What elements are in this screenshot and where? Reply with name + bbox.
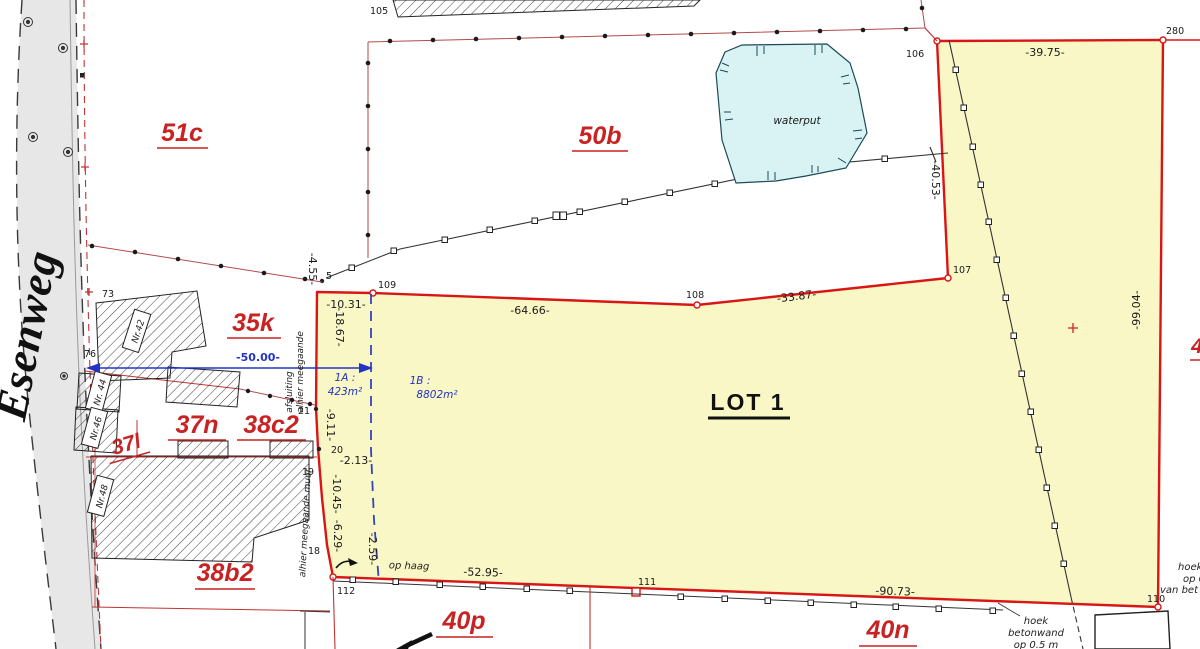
fence-post-icon	[350, 577, 356, 583]
survey-point-icon	[694, 302, 700, 308]
edge-note-line1: hoek	[1178, 562, 1200, 573]
point-109: 109	[378, 280, 396, 291]
manhole-icon	[31, 135, 34, 138]
fence-post-icon	[893, 604, 899, 610]
fence-post-icon	[851, 602, 857, 608]
point-73: 73	[102, 289, 114, 300]
fence-post-icon	[391, 248, 397, 254]
lot1-title: LOT 1	[710, 389, 785, 415]
manhole-icon	[63, 375, 65, 377]
corner-note-line3: op 0.5 m	[1014, 640, 1059, 649]
building-hatched-nr48	[91, 456, 309, 562]
survey-point-icon	[1160, 37, 1166, 43]
fence-post-icon	[936, 606, 942, 612]
measure-9-11: -9.11-	[324, 409, 337, 441]
parcel-label-38b2: 38b2	[197, 559, 254, 587]
fence-post-icon	[1003, 295, 1009, 301]
measure-90-73: -90.73-	[875, 584, 915, 598]
fence-post-icon	[437, 582, 443, 588]
fence-annotation-line2: afsluiting	[285, 371, 295, 413]
survey-point-icon	[314, 407, 318, 411]
fence-post-icon	[882, 156, 888, 162]
arrowhead-icon	[396, 640, 412, 649]
fence-post-icon	[808, 600, 814, 606]
fence-post-icon	[1028, 409, 1034, 415]
point-280: 280	[1166, 26, 1184, 37]
fence-post-icon	[1011, 333, 1017, 339]
fence-post-icon	[393, 579, 399, 585]
fence-post-icon	[349, 265, 355, 271]
measure-2-59: -2.59-	[366, 533, 379, 565]
fence-post-icon	[1061, 561, 1067, 567]
point-76: 76	[84, 349, 96, 360]
fence-post-icon	[978, 182, 984, 188]
fence-post-icon	[765, 598, 771, 604]
hedge-annotation: op haag	[389, 560, 430, 572]
building-hatched	[178, 441, 228, 458]
measure-4-55: -4.55-	[306, 253, 319, 285]
parcel-label-40n: 40n	[865, 616, 909, 644]
manhole-icon	[61, 46, 64, 49]
point-105: 105	[370, 6, 388, 17]
survey-point-icon	[632, 588, 640, 596]
fence-post-icon	[986, 219, 992, 225]
measure-2-13: -2.13-	[340, 454, 372, 467]
survey-point-icon	[317, 447, 321, 451]
point-106: 106	[906, 49, 924, 60]
fence-post-icon	[524, 586, 530, 592]
survey-point-icon	[320, 279, 324, 283]
fence-post-icon	[1019, 371, 1025, 377]
fence-post-icon	[1036, 447, 1042, 453]
point-108: 108	[686, 290, 704, 301]
fence-post-icon	[970, 144, 976, 150]
cross-mark-icon	[85, 288, 93, 296]
fence-post-icon	[712, 181, 718, 187]
fence-post-icon	[487, 227, 493, 233]
measure-52-95: -52.95-	[463, 565, 503, 579]
edge-note-line2: op 0,	[1183, 574, 1200, 585]
subparcel-1b-area: 8802m²	[416, 389, 458, 401]
boundary-dotted-south	[88, 245, 322, 282]
measure-6-29: -6.29-	[331, 520, 344, 552]
fence-post-icon	[1052, 523, 1058, 529]
fence-annotation-line1: alhier meegaande	[296, 331, 306, 413]
survey-point-icon	[945, 275, 951, 281]
measure-40-53: -40.53-	[929, 160, 942, 199]
property-line	[92, 607, 330, 611]
fence-post-icon	[532, 218, 538, 224]
dimension-label: -50.00-	[236, 351, 280, 364]
parcel-50b-51c: waterput	[88, 0, 948, 282]
boundary-stone-icon	[80, 73, 85, 78]
corner-note-line1: hoek	[1024, 616, 1050, 627]
subparcel-1b-name: 1B :	[410, 375, 431, 387]
fence-line-50b	[326, 153, 948, 278]
fence-post-icon	[667, 190, 673, 196]
fence-post-icon	[442, 237, 448, 243]
manhole-icon	[66, 150, 69, 153]
corner-note-line2: betonwand	[1008, 628, 1065, 639]
waterput: waterput	[716, 44, 867, 183]
property-line	[333, 577, 335, 649]
parcel-label-51c: 51c	[161, 119, 203, 147]
road-esenweg: Esenweg	[0, 0, 101, 649]
point-111: 111	[638, 577, 656, 588]
building-hatched	[166, 367, 240, 407]
measure-99-04: -99.04-	[1130, 290, 1143, 329]
point-112: 112	[337, 586, 355, 597]
cross-mark-icon	[80, 40, 88, 48]
parcel-label-38c2: 38c2	[243, 411, 299, 439]
fence-gate-icon	[553, 212, 560, 220]
point-18: 18	[308, 546, 320, 557]
cadastral-plan: Esenweg	[0, 0, 1200, 649]
waterput-label: waterput	[773, 115, 821, 127]
point-107: 107	[953, 265, 971, 276]
measure-10-45: -10.45-	[330, 474, 343, 513]
fence-post-icon	[1044, 485, 1050, 491]
measure-64-66: -64.66-	[510, 304, 549, 317]
fence-post-icon	[622, 199, 628, 205]
fence-post-icon	[567, 588, 573, 594]
fence-post-icon	[961, 105, 967, 111]
parcel-label-35k: 35k	[232, 309, 275, 337]
fence-post-icon	[678, 594, 684, 600]
fence-post-icon	[480, 584, 486, 590]
cross-mark-icon	[81, 163, 89, 171]
edge-note-line3: van bet	[1160, 585, 1199, 596]
manhole-icon	[26, 20, 29, 23]
fence-gate-icon	[560, 212, 567, 220]
fence-post-icon	[990, 608, 996, 614]
subparcel-1a-area: 423m²	[328, 386, 363, 398]
fence-post-icon	[577, 209, 583, 215]
plan-drawing: Esenweg	[0, 0, 1200, 649]
building-hatched	[270, 441, 313, 458]
parcel-label-50b: 50b	[578, 122, 621, 150]
building-hatched	[393, 0, 700, 17]
fence-post-icon	[994, 257, 1000, 263]
building-outline	[1095, 611, 1170, 649]
fence-post-icon	[953, 67, 959, 73]
boundary-connector	[925, 28, 937, 41]
measure-18-67: -18.67-	[333, 307, 346, 346]
point-5: 5	[326, 271, 332, 282]
parcel-label-37n: 37n	[175, 411, 218, 439]
parcel-label-40p: 40p	[441, 607, 485, 635]
measure-39-75: -39.75-	[1025, 46, 1064, 59]
parcel-label-partial: 4	[1190, 335, 1200, 358]
fence-post-icon	[722, 596, 728, 602]
subparcel-1a-name: 1A :	[335, 372, 356, 384]
